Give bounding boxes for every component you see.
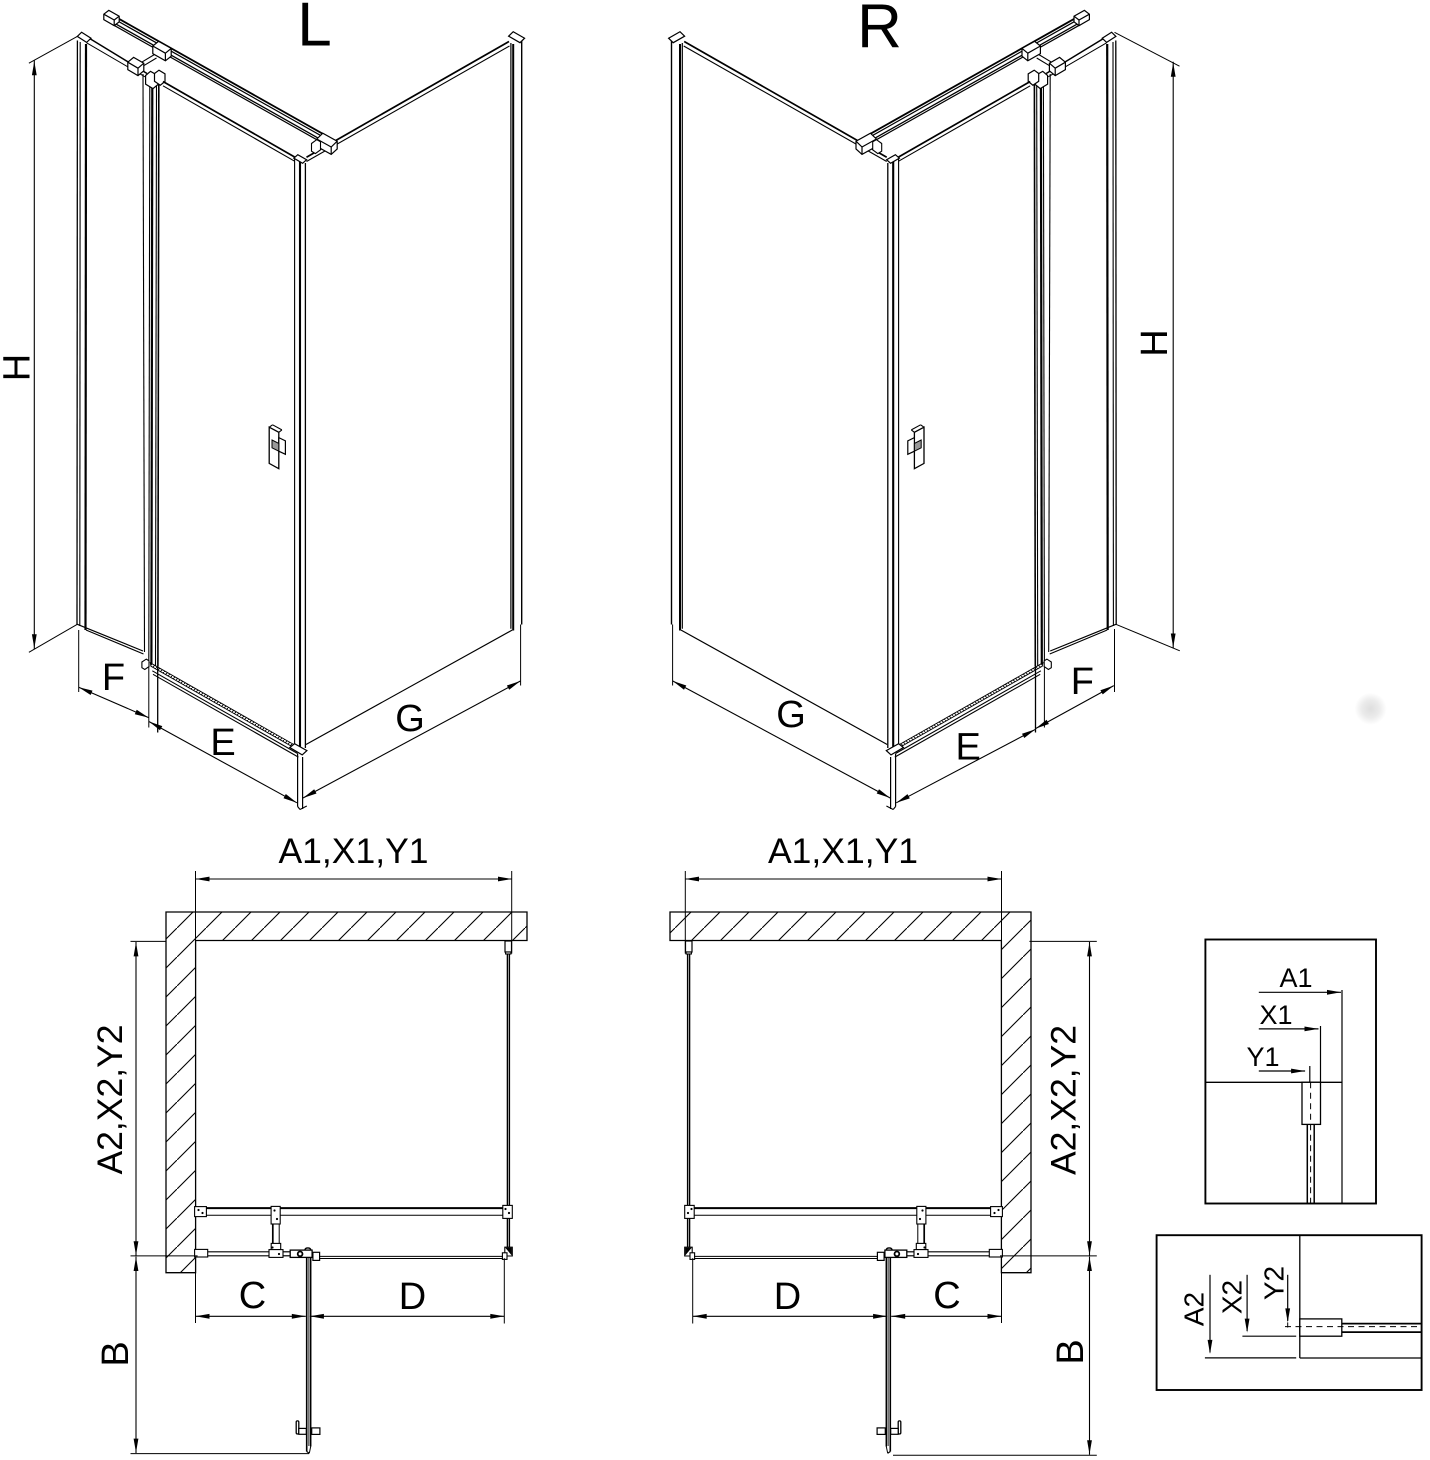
svg-text:H: H	[0, 354, 39, 381]
svg-text:C: C	[933, 1275, 960, 1317]
svg-text:X2: X2	[1217, 1280, 1248, 1314]
svg-text:E: E	[210, 722, 235, 764]
svg-text:R: R	[857, 0, 902, 62]
svg-text:A2: A2	[1179, 1292, 1210, 1326]
svg-text:Y1: Y1	[1246, 1042, 1279, 1072]
svg-text:F: F	[1071, 661, 1094, 703]
svg-text:L: L	[297, 0, 331, 60]
svg-text:A1,X1,Y1: A1,X1,Y1	[279, 831, 429, 871]
svg-text:B: B	[95, 1341, 137, 1366]
svg-text:E: E	[956, 726, 981, 768]
svg-text:D: D	[399, 1276, 426, 1318]
svg-text:Y2: Y2	[1259, 1266, 1290, 1300]
svg-text:H: H	[1134, 329, 1176, 356]
svg-text:A2,X2,Y2: A2,X2,Y2	[1044, 1025, 1084, 1175]
svg-text:B: B	[1050, 1339, 1092, 1364]
svg-text:C: C	[239, 1275, 266, 1317]
svg-text:D: D	[774, 1276, 801, 1318]
svg-text:A2,X2,Y2: A2,X2,Y2	[90, 1025, 130, 1175]
svg-text:A1,X1,Y1: A1,X1,Y1	[768, 831, 918, 871]
svg-text:F: F	[102, 657, 125, 699]
svg-text:G: G	[395, 698, 425, 740]
svg-text:G: G	[776, 694, 806, 736]
svg-text:X1: X1	[1259, 1000, 1292, 1030]
svg-text:A1: A1	[1279, 963, 1312, 993]
